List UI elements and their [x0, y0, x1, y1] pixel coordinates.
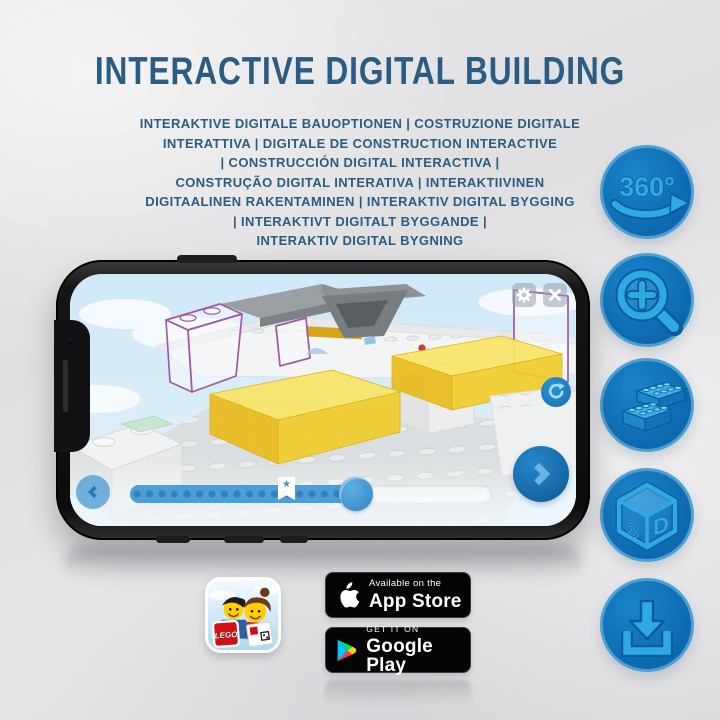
subtitle-line: DIGITAALINEN RAKENTAMINEN | INTERAKTIV D…	[100, 192, 620, 212]
cube-3d-icon: 3 D	[603, 471, 691, 559]
phone-side-button	[177, 255, 237, 263]
phone-reflection	[64, 546, 582, 580]
gear-icon	[515, 286, 533, 304]
google-play-icon	[336, 638, 357, 663]
phone-mockup: ★	[56, 260, 590, 540]
app-store-tagline: Available on the	[369, 579, 462, 589]
feature-360-label: 360°	[619, 172, 675, 202]
promo-page: INTERACTIVE DIGITAL BUILDING INTERAKTIVE…	[0, 0, 720, 720]
minifigures-art: LEGO	[208, 580, 278, 650]
feature-badge-zoom	[600, 253, 694, 347]
badge-reflection	[325, 680, 471, 706]
phone-screen: ★	[70, 274, 576, 526]
feature-badge-3d: 3 D	[600, 468, 694, 562]
progress-handle[interactable]	[339, 477, 373, 511]
google-play-name: Google Play	[366, 637, 470, 675]
bookmark-star-icon: ★	[282, 477, 291, 492]
speaker-slit	[63, 360, 68, 412]
app-store-name: App Store	[369, 592, 462, 611]
next-step-button[interactable]	[513, 446, 569, 502]
lego-logo-text: LEGO	[214, 630, 238, 641]
chevron-left-icon	[84, 483, 102, 501]
chevron-right-icon	[524, 457, 558, 491]
phone-side-button	[156, 536, 190, 543]
settings-button[interactable]	[512, 283, 536, 307]
close-button[interactable]	[543, 283, 567, 307]
subtitle-line: | INTERAKTIVT DIGITALT BYGGANDE |	[100, 212, 620, 232]
rotate-360-icon: 360°	[603, 148, 691, 236]
feature-badge-download	[600, 578, 694, 672]
apple-icon	[336, 581, 360, 609]
rotate-button[interactable]	[541, 377, 571, 407]
download-icon	[603, 581, 691, 669]
prev-step-button[interactable]	[76, 475, 110, 509]
build-progress-track[interactable]	[130, 485, 492, 503]
lego-bricks-icon	[603, 361, 691, 449]
notch	[54, 320, 90, 452]
phone-side-button	[224, 536, 264, 543]
subtitle-line: | CONSTRUCCIÓN DIGITAL INTERACTIVA |	[100, 153, 620, 173]
subtitle-line: INTERATTIVA | DIGITALE DE CONSTRUCTION I…	[100, 134, 620, 154]
subtitle-line: CONSTRUÇÃO DIGITAL INTERATIVA | INTERAKT…	[100, 173, 620, 193]
cube-3-label: 3	[628, 519, 639, 544]
lego-app-icon: LEGO	[205, 577, 281, 653]
feature-badge-360: 360°	[600, 145, 694, 239]
subtitle-line: INTERAKTIV DIGITAL BYGNING	[100, 231, 620, 251]
camera-dot	[66, 340, 73, 347]
google-play-tagline: GET IT ON	[366, 625, 470, 634]
feature-badge-bricks	[600, 358, 694, 452]
phone-side-button	[280, 536, 308, 543]
build-progress-fill	[130, 485, 365, 503]
close-icon	[546, 286, 564, 304]
rotate-icon	[546, 382, 566, 402]
page-title: INTERACTIVE DIGITAL BUILDING	[43, 48, 677, 93]
cube-d-label: D	[653, 511, 669, 541]
subtitle-line: INTERAKTIVE DIGITALE BAUOPTIONEN | COSTR…	[100, 114, 620, 134]
zoom-in-icon	[603, 256, 691, 344]
app-store-badge[interactable]: Available on the App Store	[325, 572, 471, 618]
subtitle-block: INTERAKTIVE DIGITALE BAUOPTIONEN | COSTR…	[100, 114, 620, 251]
google-play-badge[interactable]: GET IT ON Google Play	[325, 627, 471, 673]
